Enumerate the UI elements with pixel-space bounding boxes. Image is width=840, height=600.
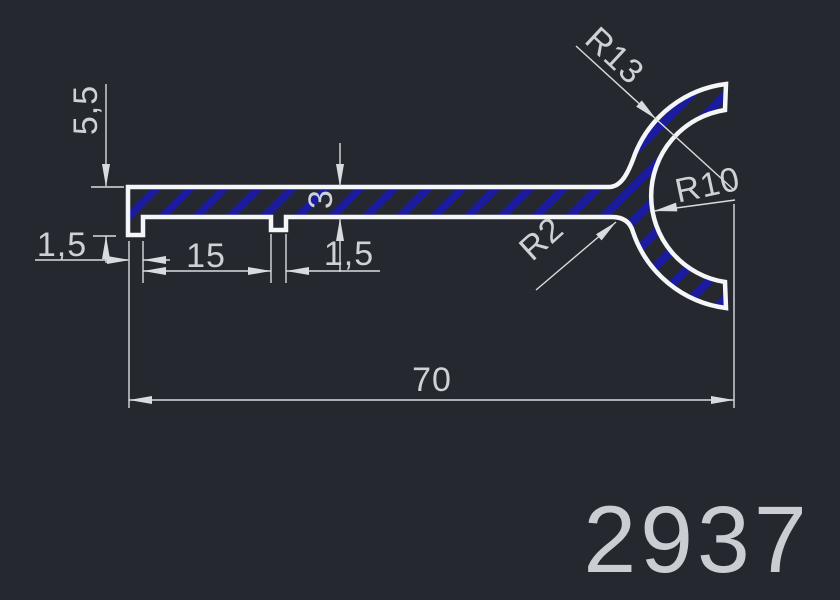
arrowhead-right [248, 267, 271, 275]
dim-total-width-label: 70 [412, 361, 452, 399]
arrowhead [596, 222, 616, 240]
part-number: 2937 [583, 487, 810, 593]
drawing-canvas[interactable]: 5,5 1,5 15 1,5 3 70 [0, 0, 840, 600]
arrowhead-right [711, 396, 734, 404]
arrowhead-down [102, 164, 110, 187]
dim-leg-spacing-label: 15 [186, 237, 226, 275]
arrowhead-left [143, 267, 166, 275]
dim-wall-thickness-label: 3 [302, 189, 340, 209]
dimension-inner-radius[interactable]: R10 [654, 160, 744, 212]
dim-second-leg-width-label: 1,5 [324, 235, 374, 273]
dim-left-height-label: 5,5 [67, 85, 105, 135]
dim-left-leg-width-label: 1,5 [37, 226, 87, 264]
dimension-second-leg-width[interactable]: 1,5 [271, 234, 380, 283]
dimension-leg-spacing[interactable]: 15 [143, 237, 271, 275]
dimension-fillet-radius[interactable]: R2 [512, 209, 616, 290]
arrowhead-left [129, 396, 152, 404]
dim-outer-radius-label: R13 [578, 20, 652, 92]
dim-inner-radius-label: R10 [672, 160, 744, 211]
dimension-left-leg-width[interactable]: 1,5 [35, 226, 170, 283]
arrowhead-right [107, 256, 130, 264]
arrowhead [654, 203, 677, 212]
cad-viewport[interactable]: 5,5 1,5 15 1,5 3 70 [0, 0, 840, 600]
arrowhead-down [336, 164, 344, 187]
